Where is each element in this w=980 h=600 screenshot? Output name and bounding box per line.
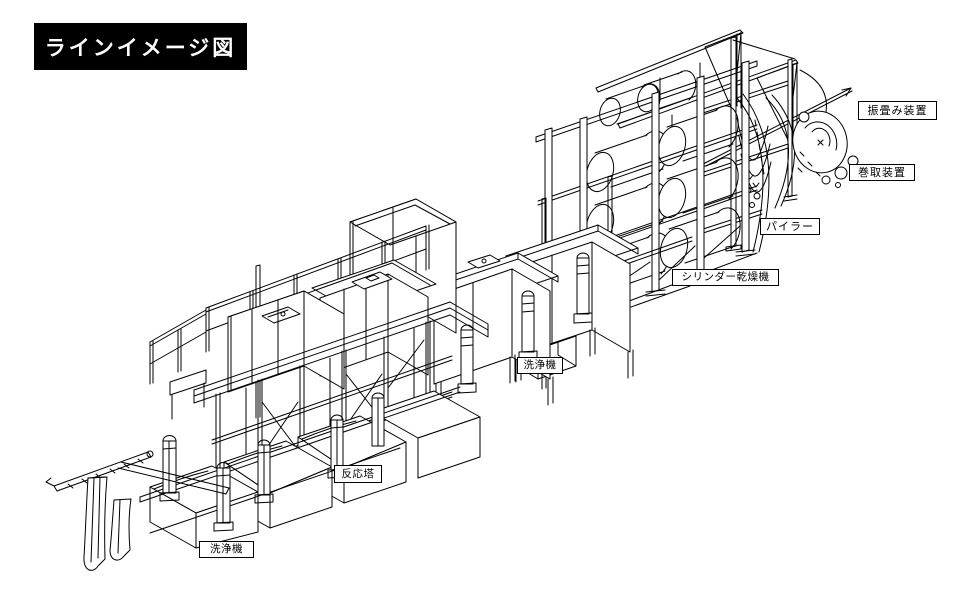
label-piler: パイラー	[760, 218, 820, 235]
diagram-title: ラインイメージ図	[34, 23, 247, 70]
label-folding-device: 振畳み装置	[858, 101, 937, 120]
label-cylinder-dryer: シリンダー乾燥機	[672, 269, 779, 286]
label-winding-device: 巻取装置	[849, 164, 915, 181]
label-washer-entry: 洗浄機	[199, 541, 254, 558]
line-diagram-canvas	[0, 0, 980, 600]
drawing-washer-mid	[426, 225, 638, 410]
label-washer-mid: 洗浄機	[517, 357, 563, 374]
drawing-winder	[787, 106, 858, 187]
drawing-washer-entry	[140, 387, 480, 548]
line-image-diagram-page: ラインイメージ図 振畳み装置 巻取装置 パイラー シリンダー乾燥機 洗浄機 反応…	[0, 0, 980, 600]
label-reaction-tower: 反応塔	[334, 465, 382, 483]
